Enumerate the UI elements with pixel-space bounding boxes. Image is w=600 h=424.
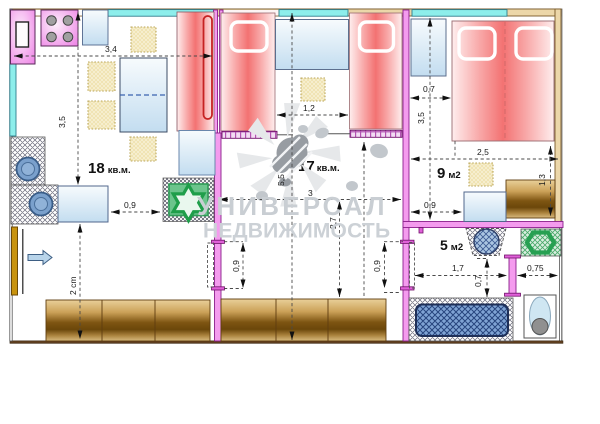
- svg-text:0,9: 0,9: [124, 200, 136, 210]
- svg-text:5,5: 5,5: [276, 174, 286, 186]
- svg-text:1,2: 1,2: [303, 103, 315, 113]
- svg-text:3,4: 3,4: [105, 44, 117, 54]
- svg-text:3,5: 3,5: [416, 112, 426, 124]
- svg-text:1,3: 1,3: [537, 174, 547, 186]
- svg-text:НЕДВИЖИМОСТЬ: НЕДВИЖИМОСТЬ: [203, 220, 390, 243]
- svg-text:УНИВЕРСАЛ: УНИВЕРСАЛ: [197, 191, 388, 221]
- svg-text:0,7: 0,7: [473, 275, 483, 287]
- svg-text:2 cm: 2 cm: [68, 277, 78, 295]
- svg-text:1,7: 1,7: [452, 263, 464, 273]
- svg-text:0,9: 0,9: [231, 260, 241, 272]
- svg-text:0,9: 0,9: [424, 200, 436, 210]
- svg-text:0,7: 0,7: [423, 84, 435, 94]
- svg-text:3,5: 3,5: [57, 116, 67, 128]
- svg-text:0,9: 0,9: [372, 260, 382, 272]
- svg-text:2,5: 2,5: [477, 147, 489, 157]
- svg-text:0,75: 0,75: [527, 263, 544, 273]
